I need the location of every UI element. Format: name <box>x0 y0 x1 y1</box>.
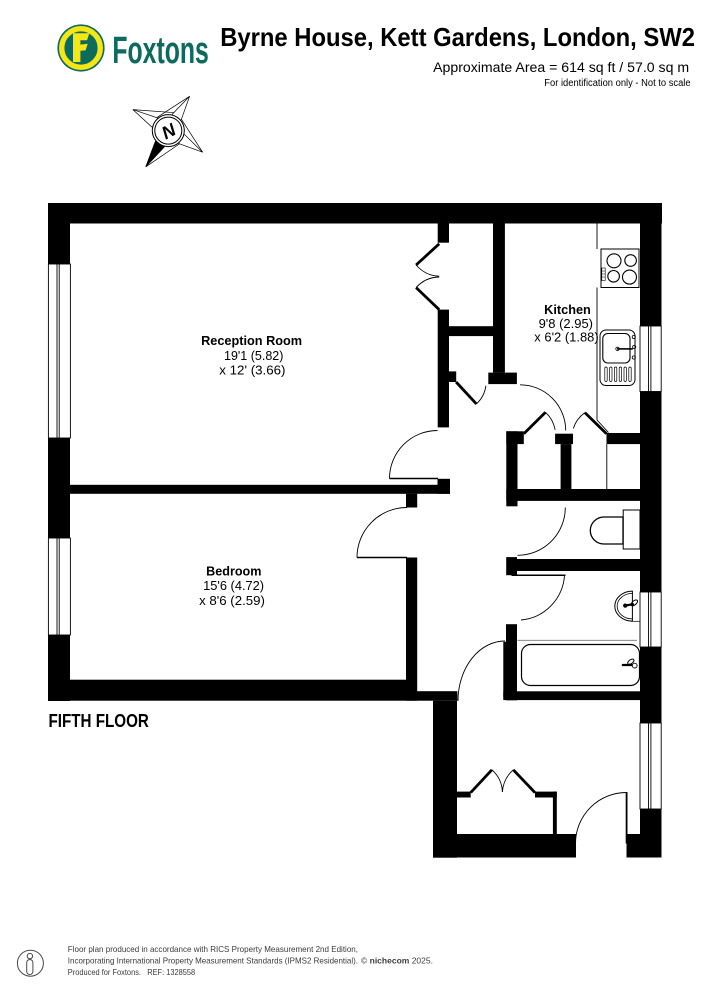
svg-text:Incorporating International Pr: Incorporating International Property Mea… <box>68 956 358 966</box>
svg-text:Kitchen: Kitchen <box>544 302 591 317</box>
svg-text:Floor plan produced in accorda: Floor plan produced in accordance with R… <box>68 944 358 954</box>
svg-text:Byrne House, Kett Gardens, Lon: Byrne House, Kett Gardens, London, SW2 <box>220 22 695 52</box>
svg-text:Bedroom: Bedroom <box>206 563 261 578</box>
svg-text:x 8'6 (2.59): x 8'6 (2.59) <box>199 593 265 608</box>
svg-text:Reception Room: Reception Room <box>201 333 302 348</box>
svg-text:Produced for Foxtons. REF: 1: Produced for Foxtons. REF: 1328558 <box>68 967 196 977</box>
svg-text:FIFTH FLOOR: FIFTH FLOOR <box>49 711 149 731</box>
svg-text:x 12' (3.66): x 12' (3.66) <box>219 363 285 378</box>
svg-text:Approximate Area = 614 sq ft /: Approximate Area = 614 sq ft / 57.0 sq m <box>433 60 689 76</box>
svg-text:For identification only - Not: For identification only - Not to scale <box>544 78 691 89</box>
svg-text:19'1 (5.82): 19'1 (5.82) <box>224 348 283 363</box>
svg-text:15'6 (4.72): 15'6 (4.72) <box>203 578 264 593</box>
svg-text:Foxtons: Foxtons <box>112 30 208 72</box>
svg-text:© nichecom 2025.: © nichecom 2025. <box>361 956 433 966</box>
svg-text:x 6'2 (1.88): x 6'2 (1.88) <box>534 330 598 345</box>
